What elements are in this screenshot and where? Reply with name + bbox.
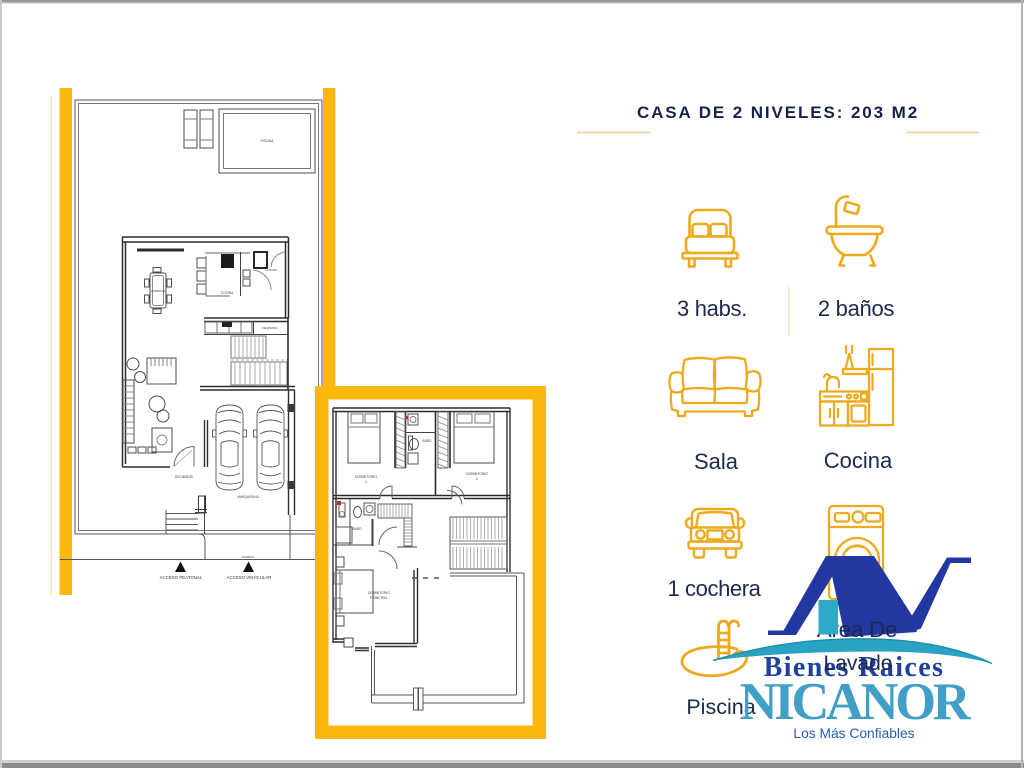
svg-text:INGRESO: INGRESO (242, 555, 254, 559)
svg-text:DORMITORIO: DORMITORIO (355, 475, 377, 479)
svg-text:Lavado: Lavado (824, 652, 893, 675)
svg-text:Sala: Sala (694, 449, 739, 474)
svg-text:CASA DE 2 NIVELES: 203 M2: CASA DE 2 NIVELES: 203 M2 (637, 103, 919, 122)
svg-text:2 baños: 2 baños (818, 296, 894, 321)
svg-text:BAÑO: BAÑO (352, 526, 362, 531)
svg-text:Cocina: Cocina (824, 448, 893, 473)
svg-text:COCINA: COCINA (221, 291, 234, 295)
svg-text:1: 1 (365, 480, 367, 484)
svg-text:1 cochera: 1 cochera (667, 576, 761, 601)
svg-text:BAÑO: BAÑO (422, 438, 432, 443)
svg-text:PISCINA: PISCINA (261, 139, 275, 143)
svg-text:COMEDOR: COMEDOR (151, 289, 166, 293)
svg-text:ACCESO PEATONAL: ACCESO PEATONAL (160, 575, 203, 580)
svg-text:DORMITORIO: DORMITORIO (368, 591, 390, 595)
svg-text:PRINCIPAL: PRINCIPAL (370, 596, 388, 600)
svg-text:3 habs.: 3 habs. (677, 296, 747, 321)
svg-text:DORMITORIO: DORMITORIO (466, 472, 488, 476)
svg-text:NICANOR: NICANOR (740, 673, 972, 731)
svg-text:MARQUESINA: MARQUESINA (237, 495, 259, 499)
svg-text:RECIBIDOR: RECIBIDOR (175, 475, 193, 479)
svg-text:2: 2 (476, 477, 478, 481)
svg-text:ACCESO VEHICULAR: ACCESO VEHICULAR (227, 575, 272, 580)
svg-text:DESPENSA: DESPENSA (262, 326, 277, 330)
svg-text:Los Más Confiables: Los Más Confiables (793, 726, 914, 741)
